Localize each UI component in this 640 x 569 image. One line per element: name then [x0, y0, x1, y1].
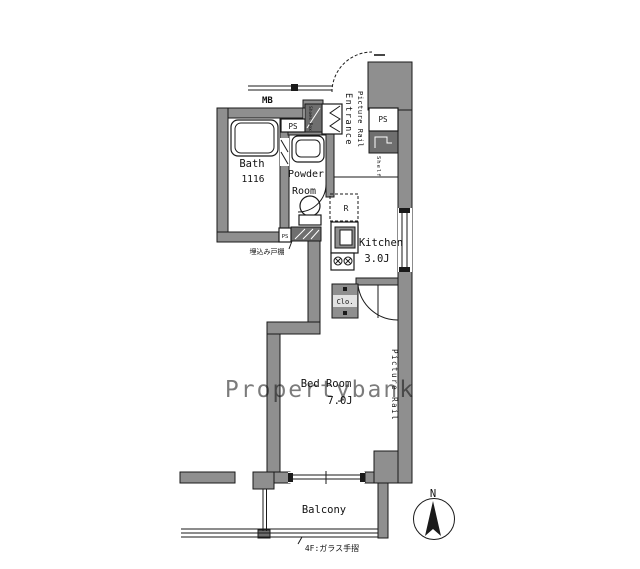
closet-dot-top	[343, 287, 347, 291]
corridor-post-dot	[291, 84, 298, 91]
wall-bedroom-left	[267, 334, 280, 473]
toilet-tank-icon	[299, 215, 321, 225]
wall-bath-left	[217, 108, 228, 242]
label-ps-right: PS	[378, 115, 388, 124]
label-kitchen: Kitchen	[359, 237, 403, 249]
wall-top-right-column	[368, 62, 412, 110]
entrance-door-swing-arc	[332, 52, 372, 92]
kitchen-window-cap-bottom	[399, 267, 410, 272]
wall-bedroom-top-left	[267, 322, 320, 334]
powder-fixtures	[292, 136, 326, 225]
floor-plan-canvas: N Propertybank MB PS PS PS Shoes Box Ent…	[0, 0, 640, 569]
railing-note-leader	[298, 537, 302, 544]
label-closet: Clo.	[337, 298, 354, 306]
compass: N	[414, 488, 455, 540]
wall-powder-right	[326, 128, 334, 197]
north-needle-icon	[425, 501, 441, 536]
wall-kitchen-left	[308, 241, 320, 323]
floor-plan-drawing: N Propertybank MB PS PS PS Shoes Box Ent…	[0, 0, 640, 569]
compass-north-label: N	[430, 488, 436, 500]
bedroom-window-cap-left	[288, 473, 293, 482]
label-mb: MB	[262, 96, 273, 106]
wall-bedroom-door-header	[356, 278, 398, 285]
label-shelf: Shelf	[375, 156, 381, 178]
wall-neighbor-left	[180, 472, 235, 483]
label-shoes-box: Shoes Box	[307, 106, 313, 131]
label-cupboard-note: 埋込み戸棚	[250, 247, 285, 256]
closet-dot-bottom	[343, 311, 347, 315]
kitchen-window-cap-top	[399, 208, 410, 213]
wall-bath-top	[217, 108, 303, 118]
wall-bath-bottom	[217, 232, 279, 242]
entrance-door	[322, 104, 342, 134]
shelf-unit	[369, 131, 398, 153]
wall-balcony-right	[378, 483, 388, 538]
wall-balcony-column	[253, 472, 274, 489]
wall-right	[398, 95, 412, 483]
bathtub-icon	[231, 120, 278, 156]
toilet-bowl-icon	[300, 196, 320, 216]
label-bath: Bath	[239, 158, 264, 170]
label-bath-size: 1116	[242, 174, 265, 185]
corridor-lines	[248, 52, 385, 92]
label-bedroom-size: 7.0J	[327, 395, 352, 407]
label-powder-1: Powder	[288, 169, 324, 180]
bedroom-window-cap-right	[360, 473, 365, 482]
balcony-railing	[181, 489, 378, 544]
label-ps-small: PS	[282, 234, 289, 240]
wall-corner-column	[374, 451, 398, 483]
label-railing-note: 4F:ガラス手摺	[305, 543, 359, 553]
label-picture-rail-bedroom: Picture Rail	[390, 349, 399, 421]
label-picture-rail-entrance: Picture Rail	[356, 91, 364, 148]
label-bedroom: Bed Room	[301, 378, 352, 390]
label-ps-top: PS	[288, 122, 298, 131]
label-balcony: Balcony	[302, 504, 346, 516]
sink-bowl-icon	[340, 230, 352, 245]
entrance-door-frame	[322, 104, 342, 134]
label-fridge: R	[344, 204, 349, 213]
label-powder-2: Room	[292, 186, 316, 197]
label-entrance: Entrance	[343, 93, 353, 146]
label-kitchen-size: 3.0J	[364, 253, 389, 265]
